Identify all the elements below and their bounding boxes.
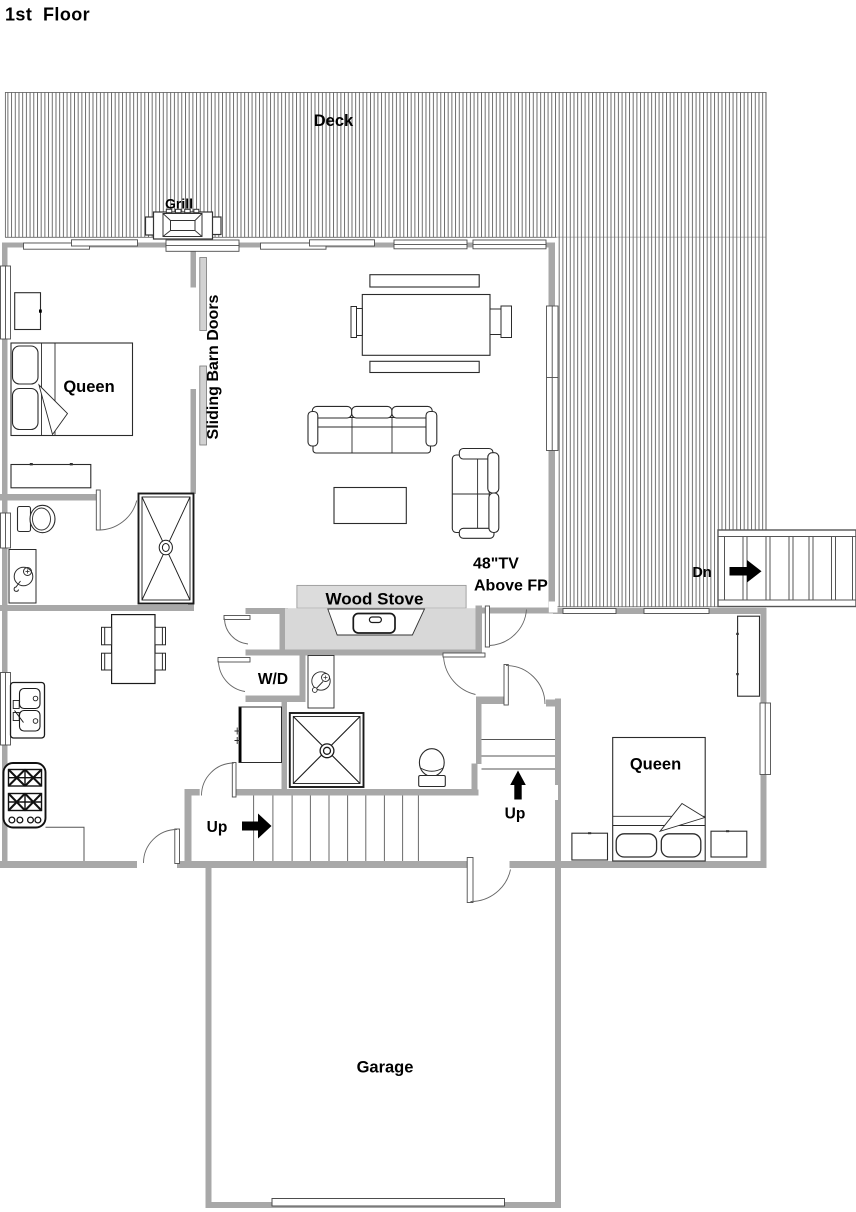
svg-text:Sliding Barn Doors: Sliding Barn Doors [205,294,222,439]
svg-text:Above FP: Above FP [474,578,548,595]
svg-text:W/D: W/D [258,671,288,688]
svg-text:Up: Up [505,806,526,823]
svg-text:Dn: Dn [692,565,711,581]
svg-text:Deck: Deck [314,112,354,130]
svg-text:Queen: Queen [630,756,681,774]
svg-text:Wood Stove: Wood Stove [326,590,424,609]
svg-text:48"TV: 48"TV [473,556,519,573]
svg-text:1st Floor: 1st Floor [5,5,90,25]
svg-text:Grill: Grill [165,196,193,212]
svg-text:Garage: Garage [357,1059,414,1077]
svg-text:Up: Up [207,819,228,836]
svg-text:Queen: Queen [63,378,114,396]
